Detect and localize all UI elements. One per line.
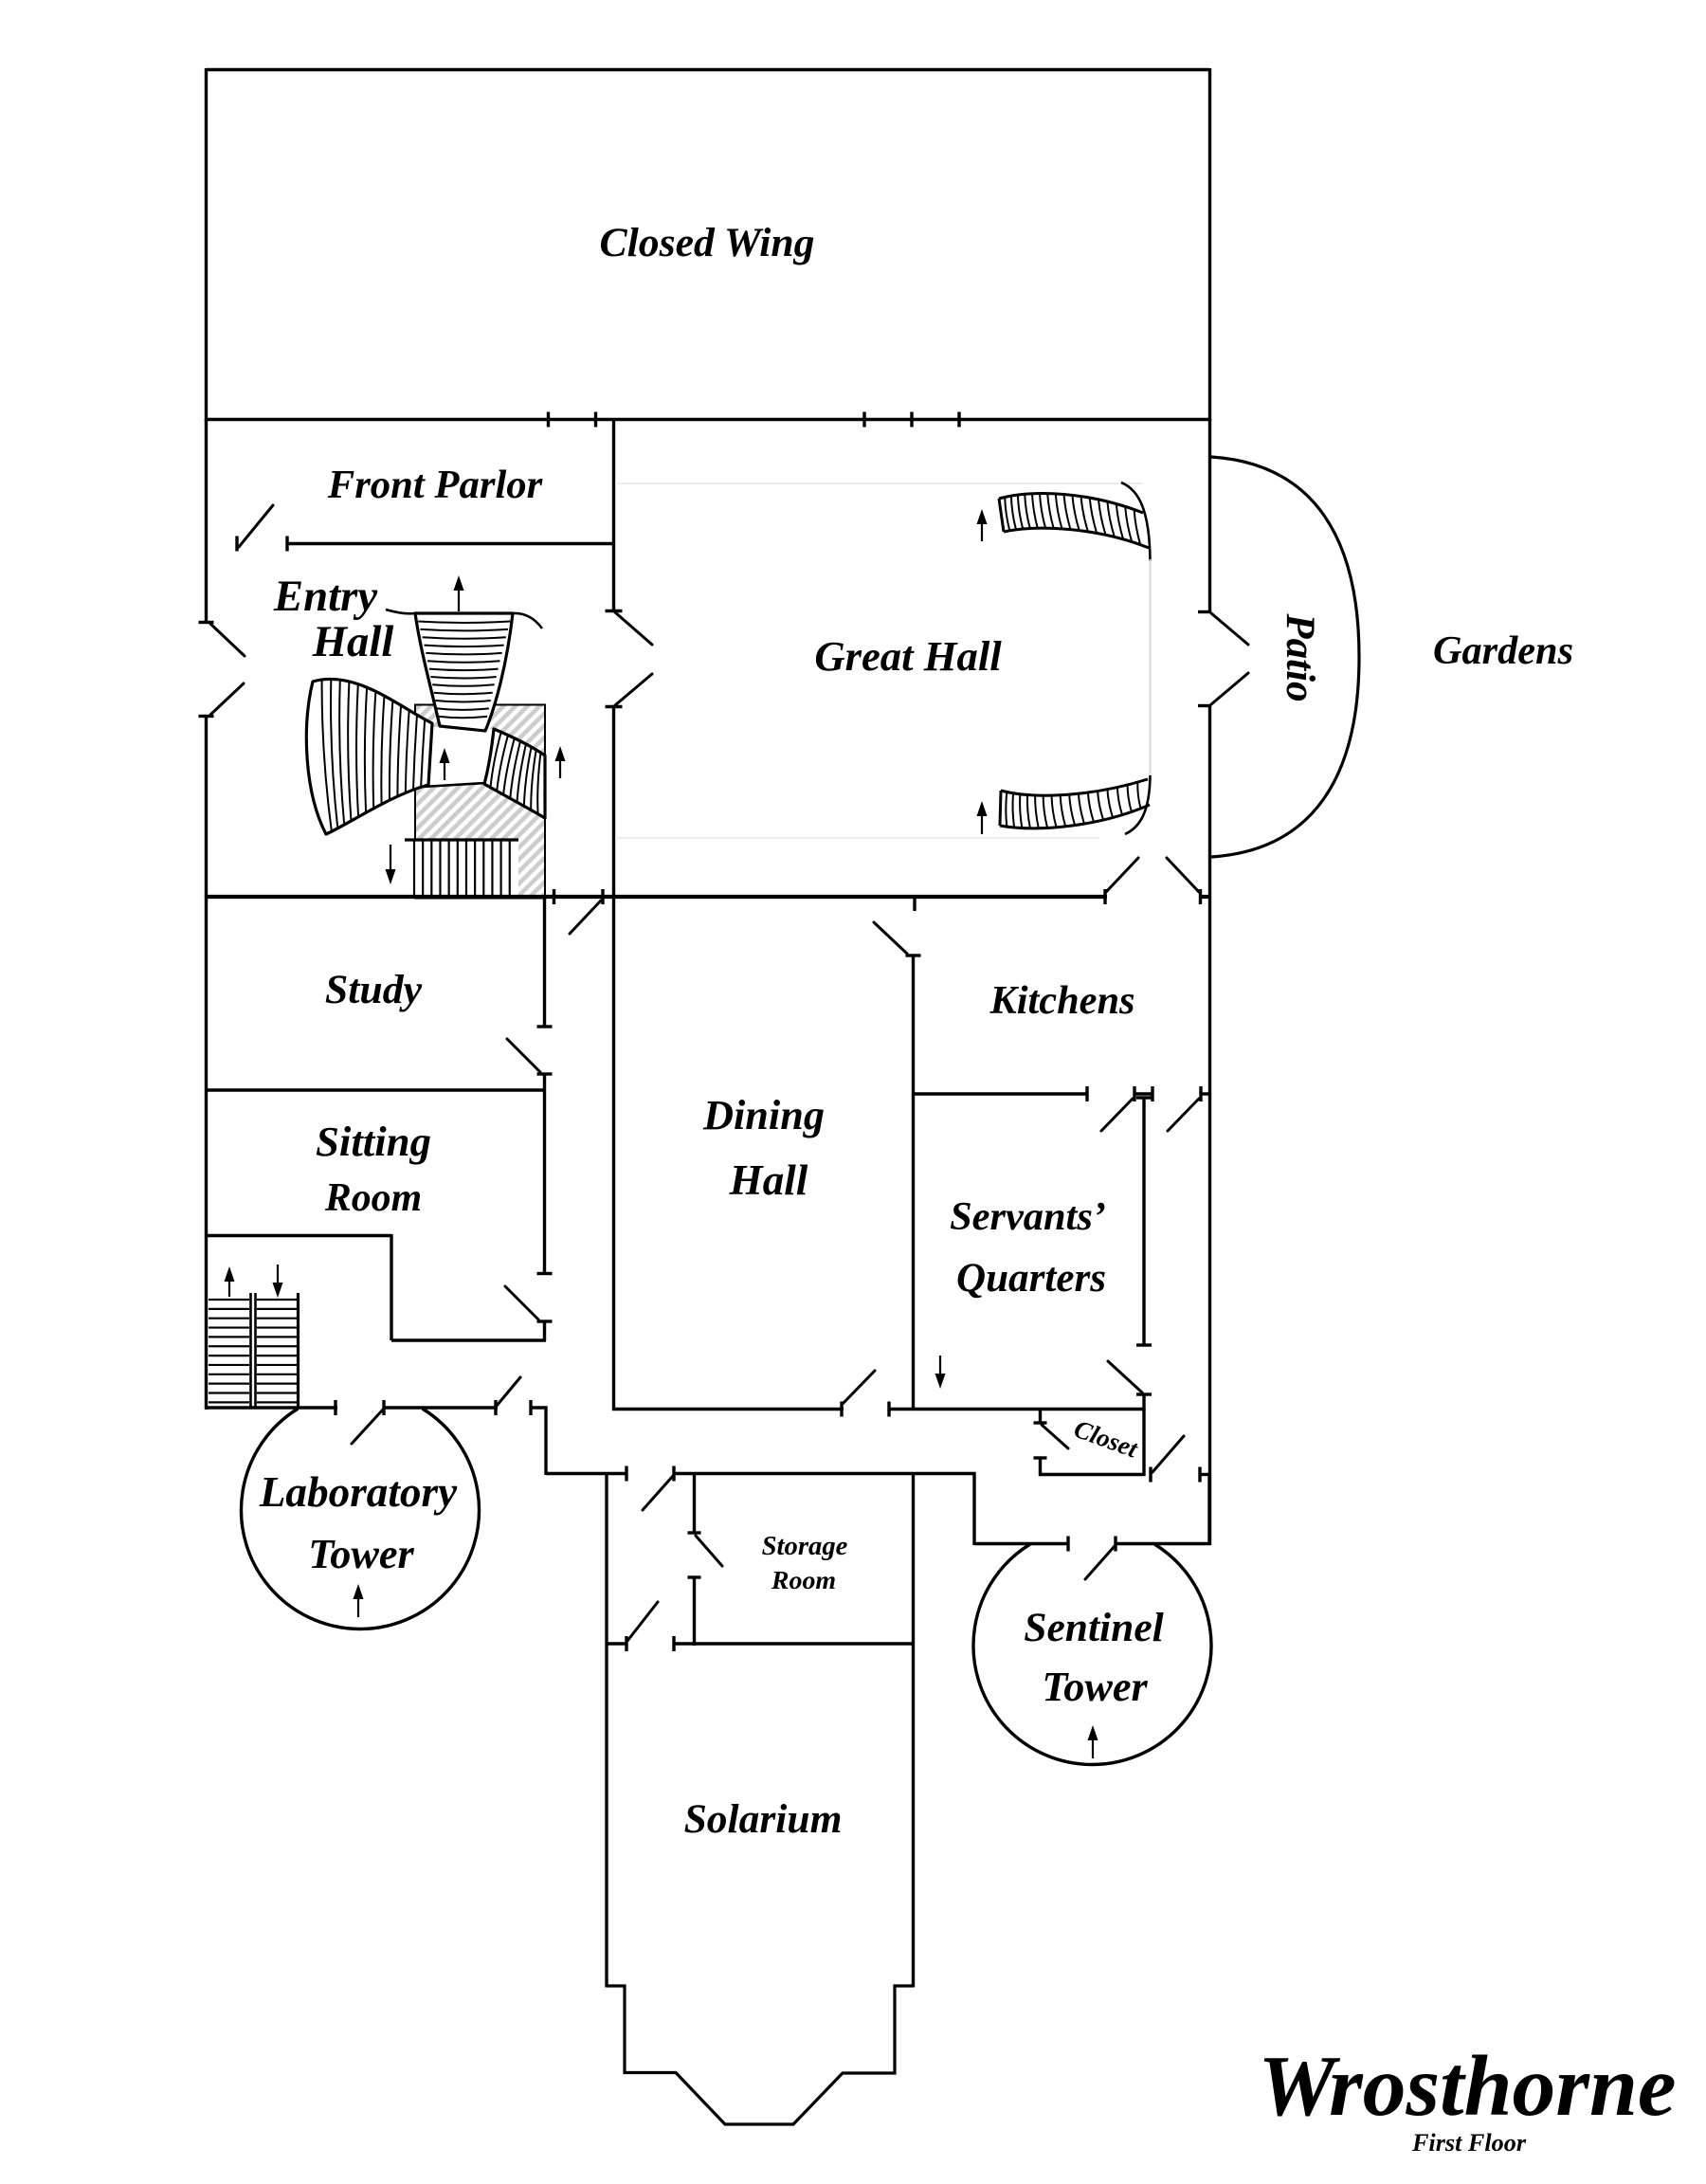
svg-text:Laboratory: Laboratory [259,1468,458,1516]
svg-text:Study: Study [325,967,423,1012]
svg-text:Kitchens: Kitchens [989,978,1134,1023]
svg-text:First Floor: First Floor [1411,2129,1527,2157]
svg-text:Closed Wing: Closed Wing [600,220,815,265]
svg-text:Hall: Hall [729,1156,808,1204]
svg-text:Storage: Storage [762,1531,848,1561]
svg-text:Wrosthorne: Wrosthorne [1258,2037,1676,2134]
svg-text:Servants’: Servants’ [950,1194,1106,1239]
svg-text:Entry: Entry [273,572,377,621]
svg-text:Solarium: Solarium [684,1796,843,1842]
svg-text:Patio: Patio [1278,612,1322,701]
svg-text:Front Parlor: Front Parlor [327,463,543,507]
svg-text:Quarters: Quarters [956,1256,1106,1301]
svg-text:Tower: Tower [308,1531,414,1577]
svg-text:Sentinel: Sentinel [1024,1605,1164,1650]
svg-text:Dining: Dining [702,1092,825,1138]
svg-text:Great Hall: Great Hall [814,632,1002,680]
svg-text:Tower: Tower [1042,1664,1148,1710]
svg-text:Gardens: Gardens [1433,628,1573,673]
svg-text:Sitting: Sitting [316,1118,431,1165]
svg-text:Hall: Hall [312,617,394,666]
svg-text:Room: Room [771,1566,836,1595]
svg-text:Room: Room [324,1176,422,1220]
